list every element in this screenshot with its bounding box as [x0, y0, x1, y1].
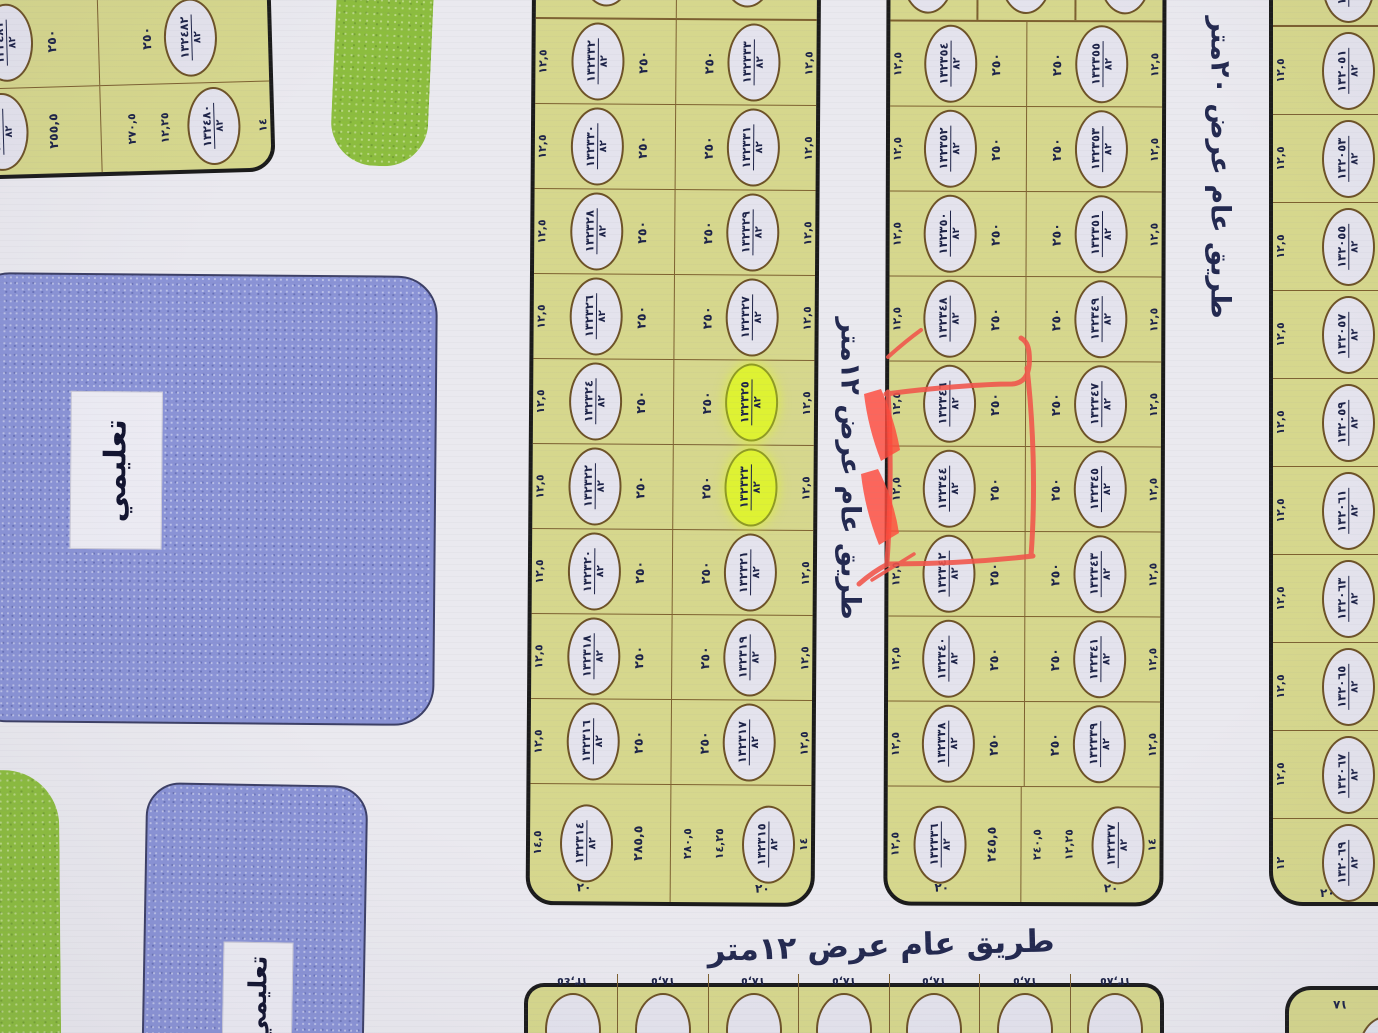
- parcel-row: ١٢,٥ ١٣٢٣٢٤٨٢ ٢٥٠ ٢٥٠ ١٣٢٣٢٥٨٢ ١٢,٥: [533, 359, 815, 446]
- dimension-label: ١٢,٥: [890, 481, 903, 496]
- plot-oval: ١٣٢٠٥١٨٢: [1322, 32, 1375, 110]
- parcel-row: ١٢,٥ ١٣٢٣٤٢٨٢ ٢٥٠ ٢٥٠ ١٣٢٣٤٣٨٢ ١٢,٥: [888, 532, 1160, 618]
- district-number: ٨٢: [1350, 328, 1362, 340]
- plot-cell: ٢٥٠ ١٣٢٣٤٥٨٢: [1025, 447, 1146, 531]
- plot-cell: ١٣٢٣١٦٨٢ ٢٥٠: [545, 699, 672, 784]
- area-label: ٢٨٥,٥: [630, 826, 645, 861]
- area-label: ٢٥٥,٥: [45, 113, 61, 149]
- plot-cell: ١٨,٥: [979, 974, 1069, 1033]
- plot-oval: ١٣٢٠٤٩٨٢: [1322, 0, 1375, 23]
- plot-number: ١٣٢٠٦٣: [1336, 575, 1350, 621]
- plot-cell: ٢٥٠ ١٣٢٣٤٩٨٢: [1026, 277, 1147, 361]
- district-number: ٨٢: [588, 837, 600, 849]
- plot-cell: ١٣٢٣٢٤٨٢ ٢٥٠: [548, 359, 675, 444]
- plot-oval: ١٣٢٣٣٩٨٢: [1073, 705, 1126, 783]
- plot-oval: [906, 993, 962, 1033]
- area-label: ٢٤٠,٥: [1030, 829, 1043, 860]
- plot-cell: ١٣٢٤٧٩٨٢ ٢٥٥,٥: [0, 86, 103, 176]
- dimension-label: ١٢,٥: [1274, 239, 1287, 254]
- dimension-label: ١٢,٥: [1274, 63, 1287, 78]
- plot-oval: ١٣٢٣٢٠٨٢: [568, 532, 622, 610]
- landuse-label-box: تعليمي: [222, 941, 294, 1033]
- parcel-row: ١٢,٥ ١٣٢٣٥٢٨٢ ٢٥٠ ٢٥٠ ١٣٢٣٥٣٨٢ ١٢,٥: [890, 107, 1162, 193]
- area-label: ٢٥٠: [698, 476, 713, 499]
- dimension-label: ١٢,٥: [1274, 679, 1287, 694]
- district-number: ٨٢: [1101, 568, 1113, 580]
- plot-oval: ١٣٢٣٥٣٨٢: [1075, 110, 1128, 188]
- plot-oval: ١٣٢٤٨١٨٢: [0, 3, 34, 82]
- area-label: ٢٥٠: [986, 562, 1001, 585]
- district-number: ٨٢: [1102, 313, 1114, 325]
- dimension-label: ١٢,٥: [1274, 415, 1287, 430]
- district-number: ٨٢: [751, 651, 763, 663]
- area-label: ٢٥٠: [986, 647, 1001, 670]
- plot-cell: ٢٥٠ ١٣٢٣٤٧٨٢: [1025, 362, 1146, 446]
- district-number: ٨٢: [1102, 398, 1114, 410]
- plot-cell: ١٣٢٣٣٨٨٢ ٢٥٠: [903, 702, 1025, 786]
- plot-oval: ١٣٢٣٢٩٨٢: [726, 193, 780, 271]
- plot-oval: ١٣٢٣٣١٨٢: [727, 108, 781, 186]
- dimension-label: ٢٠: [934, 881, 949, 895]
- parcel-row-bottom: ١٢,٥ ١٣٢٣٣٦٨٢ ٢٤٥,٥ ٢٠ ٢٤٠,٥١٢,٢٥ ١٣٢٣٣٧…: [887, 787, 1159, 903]
- district-number: ٨٢: [1350, 504, 1362, 516]
- plot-number: ١٣٢٣٣٨: [935, 721, 949, 767]
- plot-oval: ١٣٢٠٥٧٨٢: [1322, 296, 1375, 374]
- area-label: ٢٥٠: [1048, 478, 1063, 501]
- plot-number: ١٣٢٣٢٥: [739, 379, 753, 425]
- plot-cell: ٢٥٠ ١٣٢٣٥٥٨٢: [1027, 22, 1148, 106]
- parcel-row: ١٢,٥ ١٣٢٣٢٠٨٢ ٢٥٠ ٢٥٠ ١٣٢٣٢١٨٢ ١٢,٥: [532, 529, 814, 616]
- parcel-rows: ١٢,٥ ١٣٢٣٥٤٨٢ ٢٥٠ ٢٥٠ ١٣٢٣٥٥٨٢ ١٢,٥ ١٢,٥…: [888, 22, 1163, 788]
- plot-cell: ٢٥٠ ١٣٢٣٢٧٨٢: [674, 275, 800, 360]
- dimension-label: ٢٠: [755, 882, 770, 896]
- plot-cell: ١٣٢٠٤٩٨٢: [1273, 0, 1378, 25]
- cell-divider: [1075, 0, 1077, 20]
- bottom-right-parcel-block: ١٨: [1285, 986, 1378, 1033]
- dimension-label: ١٢,٥: [1148, 142, 1161, 157]
- plot-number: ١٣٢٠٦١: [1336, 487, 1350, 533]
- green-space: [329, 0, 435, 168]
- dimension-label: ١٢,٥: [1274, 151, 1287, 166]
- district-number: ٨٢: [1350, 416, 1362, 428]
- district-number: ٨٢: [1101, 738, 1113, 750]
- plot-oval: ١٣٢٣٤٩٨٢: [1074, 280, 1127, 358]
- plot-oval: ١٣٢٣٣٠٨٢: [571, 107, 625, 185]
- plot-oval: ١٣٢٣٢٥٨٢: [725, 363, 779, 441]
- plot-cell: ١٣٢٣٤٤٨٢ ٢٥٠: [904, 447, 1026, 531]
- district-number: ٨٢: [755, 141, 767, 153]
- plot-cell: ١٣٢٠٦٥٨٢: [1288, 643, 1378, 730]
- parcel-row: ١٢,٥ ١٣٢٣٢٢٨٢ ٢٥٠ ٢٥٠ ١٣٢٣٢٣٨٢ ١٢,٥: [532, 444, 814, 531]
- dimension-label: ١٨,٥: [741, 975, 765, 988]
- plot-cell: ١٣٢٣١٨٨٢ ٢٥٠: [546, 614, 673, 699]
- plot-number: ١٣٢٣٤٦: [937, 381, 951, 427]
- plot-oval: ١٣٢٣٢٣٨٢: [724, 448, 778, 526]
- parcel-row: ١٢,٥ ١٣٢٣٤٤٨٢ ٢٥٠ ٢٥٠ ١٣٢٣٤٥٨٢ ١٢,٥: [889, 447, 1161, 533]
- area-label: ٢٥٠: [700, 306, 715, 329]
- plot-oval: ١٣٢٣٣٧٨٢: [1091, 806, 1144, 884]
- dimension-label: ١٤: [797, 837, 810, 852]
- plot-oval: ١٣٢٣١٥٨٢: [742, 805, 796, 883]
- plot-oval: ١٣٢٣٥٢٨٢: [924, 110, 977, 188]
- plot-cell: ١٣٢٠٥١٨٢: [1288, 27, 1378, 114]
- plot-cell: ١٣٢٠٥٧٨٢: [1288, 291, 1378, 378]
- plot-oval: ١٣٢٣١٩٨٢: [723, 618, 777, 696]
- landuse-label-box: تعليمي: [70, 391, 163, 550]
- plot-oval: ١٣٢٣٢٤٨٢: [569, 362, 623, 440]
- plot-number: ١٣٢٣٣٠: [584, 123, 598, 169]
- plot-oval: [635, 993, 691, 1033]
- parcel-rows: ١٢,٥ ١٣٢٣٣٢٨٢ ٢٥٠ ٢٥٠ ١٣٢٣٣٣٨٢ ١٢,٥ ١٢,٥…: [530, 19, 816, 786]
- parcel-row: ١٢,٥ ١٣٢٣٤٦٨٢ ٢٥٠ ٢٥٠ ١٣٢٣٤٧٨٢ ١٢,٥: [889, 362, 1161, 448]
- plot-oval: [997, 993, 1053, 1033]
- plot-oval: ١٣٢٣٣٣٨٢: [727, 23, 781, 101]
- district-number: ٨٢: [750, 736, 762, 748]
- parcel-rows: ١٢,٥ ١٣٢٠٥١٨٢ ١٢,٥ ١٣٢٠٥٣٨٢ ١٢,٥ ١٣٢٠٥٥٨…: [1273, 27, 1378, 819]
- plot-oval: ١٣٢٣٤١٨٢: [1073, 620, 1126, 698]
- plot-oval: ١٣٢٣١٧٨٢: [722, 703, 776, 781]
- plot-oval: ١٣٢٠٥٩٨٢: [1322, 384, 1375, 462]
- area-label: ٢٥٠: [987, 392, 1002, 415]
- dimension-label: ١٢,٥: [1146, 567, 1159, 582]
- plot-cell: ١٣٢٣٣٥٨٢: [677, 0, 818, 19]
- plot-number: ١٣٢٣٤٩: [1088, 296, 1102, 342]
- plot-cell: ١٨,٥: [798, 974, 888, 1033]
- road-label-12m-horizontal: طريق عام عرض ١٢متر: [676, 922, 1087, 969]
- plot-cell: ١٣٢٣٢٢٨٢ ٢٥٠: [547, 444, 674, 529]
- plot-number: ١٣٢٣٣٢: [585, 38, 599, 84]
- district-number: ٨٢: [595, 735, 607, 747]
- dimension-label: ١٤: [1146, 837, 1159, 852]
- plot-oval: ١٣٢٣٢٨٨٢: [570, 192, 624, 270]
- district-number: ٨٢: [1102, 483, 1114, 495]
- area-label: ٢٥٠: [633, 390, 648, 413]
- parcel-row-bottom: ١٤,٥ ١٣٢٣١٤٨٢ ٢٨٥,٥ ٢٠ ٢٨٠,٥١٤,٢٥ ١٣٢٣١٥…: [530, 784, 812, 903]
- plot-cell: ١٣٢٠٦٣٨٢: [1288, 555, 1378, 642]
- plot-cell: ١٣٢٠٦٩٨٢ ٢٠: [1288, 819, 1378, 907]
- plot-cell: ٢٥٠ ١٣٢٤٨٢٨٢: [98, 0, 254, 85]
- plot-cell: ٢٥٠ ١٣٢٣٣١٨٢: [676, 105, 802, 190]
- plot-oval: ١٣٢٣٥٤٨٢: [924, 25, 977, 103]
- plot-number: ١٣٢٣٥٤: [938, 41, 952, 87]
- plot-number: ١٣٢٣٥٣: [1089, 126, 1103, 172]
- plot-cell: ١٣٢٠٥٣٨٢: [1288, 115, 1378, 202]
- area-label: ٢٥٠: [1049, 223, 1064, 246]
- dimension-label: ١٢,٥: [532, 734, 545, 749]
- area-label: ٢٥٠: [1049, 308, 1064, 331]
- plot-oval: ١٣٢٤٧٩٨٢: [0, 92, 30, 171]
- district-number: ٨٢: [950, 653, 962, 665]
- plot-cell: ١٣٢٣٤٢٨٢ ٢٥٠: [903, 532, 1025, 616]
- subdivision-map: ١٣٢٤٨٣٨٢ ٢٥٠ ٢٧٠,٥١٣,٢٥ ١٣٢٤٨٤٨٢ ١٢,٥ ١٣…: [0, 0, 1378, 1033]
- parcel-row: ١٢,٥ ١٣٢٠٥٩٨٢: [1273, 379, 1378, 467]
- district-number: ٨٢: [951, 313, 963, 325]
- dimension-label: ١٢,٥: [1148, 57, 1161, 72]
- plot-cell: ١٣٢٣٥٢٨٢ ٢٥٠: [905, 107, 1027, 191]
- plot-cell: ١٨,٥: [889, 974, 979, 1033]
- plot-oval: ١٣٢٣٣٤٨٢: [579, 0, 633, 7]
- parcel-row: ١٢,٥ ١٣٢٠٥٧٨٢: [1273, 291, 1378, 379]
- plot-cell: ١٣٢٣٣٢٨٢ ٢٥٠: [550, 19, 677, 104]
- plot-number: ١٣٢٣٢٣: [738, 464, 752, 510]
- landuse-label: تعليمي: [98, 419, 134, 522]
- dimension-label: ١٢,٥: [533, 479, 546, 494]
- dimension-label: ١٢,٥: [1147, 397, 1160, 412]
- area-label: ٢٥٠: [1047, 733, 1062, 756]
- area-label: ٢٥٠: [701, 51, 716, 74]
- dimension-label: ١٢,٥: [799, 480, 812, 495]
- area-label: ٢٥٠: [1047, 648, 1062, 671]
- area-label: ٢٥٠: [988, 137, 1003, 160]
- district-number: ٨٢: [1350, 768, 1362, 780]
- plot-number: ١٣٢٣٢٢: [582, 463, 596, 509]
- dimension-label: ١٢,٥: [889, 837, 902, 852]
- plot-cell: ١٣٢٣٣٠٨٢ ٢٥٠: [550, 104, 677, 189]
- plot-cell: ١٣٢٣٤٠٨٢ ٢٥٠: [903, 617, 1025, 701]
- plot-number: ١٣٢٣١٩: [737, 634, 751, 680]
- plot-oval: ١٣٢٣٤٨٨٢: [923, 280, 976, 358]
- dimension-label: ١٢,٥: [1274, 503, 1287, 518]
- parcel-row-partial: ١٣٢٣٥٦٨٢ ١٣٢٣٥٧٨٢ ١٣٢٣٥٨٨٢: [890, 0, 1162, 22]
- district-number: ٨٢: [950, 483, 962, 495]
- area-label: ٢٥٠: [632, 475, 647, 498]
- district-number: ٨٢: [1350, 592, 1362, 604]
- plot-cell: ٢٥٠ ١٣٢٣٣٣٨٢: [676, 20, 802, 105]
- plot-oval: ١٣٢٣٥٨٨٢: [1098, 0, 1151, 14]
- parcel-row: ١٢,٥ ١٣٢٣١٦٨٢ ٢٥٠ ٢٥٠ ١٣٢٣١٧٨٢ ١٢,٥: [530, 699, 812, 786]
- dimension-label: ١٢: [1274, 856, 1287, 871]
- district-number: ٨٢: [950, 568, 962, 580]
- plot-number: ١٣٢٣٢٠: [582, 548, 596, 594]
- plot-oval: ١٣٢٤٨٢٨٢: [163, 0, 218, 77]
- plot-oval: [545, 993, 601, 1033]
- plot-cell: ١٣٢٣٥٤٨٢ ٢٥٠: [905, 22, 1027, 106]
- dimension-label: ١٢,٥: [801, 225, 814, 240]
- plot-number: ١٣٢٣٣٣: [741, 39, 755, 85]
- plot-number: ١٣٢٣١٧: [736, 719, 750, 765]
- plot-number: ١٣٢٣٥٥: [1089, 41, 1103, 87]
- plot-number: ١٣٢٣٢٩: [740, 209, 754, 255]
- plot-number: ١٣٢٣٣٦: [927, 821, 941, 867]
- plot-oval: ١٣٢٠٦٧٨٢: [1322, 736, 1375, 814]
- plot-cell: ٢٥٠ ١٣٢٣٥١٨٢: [1026, 192, 1147, 276]
- district-number: ٨٢: [1350, 680, 1362, 692]
- plot-number: ١٣٢٣٤٥: [1088, 466, 1102, 512]
- plot-oval: ١٣٢٤٨٠٨٢: [186, 86, 241, 165]
- dimension-label: ١٢,٥: [800, 395, 813, 410]
- dimension-label: ١٨,٥: [832, 975, 856, 988]
- parcel-block-a: ١٣٢٣٣٤٨٢ ١٣٢٣٣٥٨٢ ١٢,٥ ١٣٢٣٣٢٨٢ ٢٥٠ ٢٥٠ …: [526, 0, 822, 907]
- parcel-row: ١٢,٥ ١٣٢٣٥٠٨٢ ٢٥٠ ٢٥٠ ١٣٢٣٥١٨٢ ١٢,٥: [890, 192, 1162, 278]
- parcel-row: ١٢,٥ ١٣٢٣٤٠٨٢ ٢٥٠ ٢٥٠ ١٣٢٣٤١٨٢ ١٢,٥: [888, 617, 1160, 703]
- green-space: [0, 770, 61, 1033]
- plot-number: ١٣٢٤٨٢: [177, 14, 192, 60]
- plot-oval: ١٣٢٣٤٥٨٢: [1074, 450, 1127, 528]
- corner-parcel-block: ١٣٢٤٨٣٨٢ ٢٥٠ ٢٧٠,٥١٣,٢٥ ١٣٢٤٨٤٨٢ ١٢,٥ ١٣…: [0, 0, 276, 181]
- dimension-label: ١٢,٥: [801, 310, 814, 325]
- parcel-row: ١٢,٥ ١٣٢٠٦٧٨٢: [1273, 731, 1378, 819]
- plot-number: ١٣٢٣٣٧: [1105, 822, 1119, 868]
- area-label: ٢٥٠: [986, 732, 1001, 755]
- dimension-label: ١٢,٥: [534, 394, 547, 409]
- plot-number: ١٣٢٣٤٧: [1088, 381, 1102, 427]
- plot-oval: ١٣٢٠٦١٨٢: [1322, 472, 1375, 550]
- plot-cell: ١٣٢٣٣٤٨٢: [536, 0, 678, 18]
- dimension-label: ١٢,٥: [890, 396, 903, 411]
- dimension-label: ١٢,٥: [799, 565, 812, 580]
- plot-number: ١٣٢٣٤٨: [937, 296, 951, 342]
- bottom-parcel-strip: ١٣,٤٥ ١٨,٥ ١٨,٥ ١٨,٥ ١٨,٥ ١٨,٥ ١٣,٨٥: [524, 983, 1164, 1033]
- plot-number: ١٣٢٣٥١: [1088, 211, 1102, 257]
- plot-number: ١٣٢٣٢٦: [583, 293, 597, 339]
- plot-cell: ١٣٢٠٥٥٨٢: [1288, 203, 1378, 290]
- dimension-label: ١٨,٥: [922, 975, 946, 988]
- dimension-label: ١٢,٥: [535, 309, 548, 324]
- plot-cell: ٢٨٠,٥١٤,٢٥ ١٣٢٣١٥٨٢ ٢٠: [671, 785, 797, 903]
- parcel-row: ١٢,٥ ١٣٢٠٦٣٨٢: [1273, 555, 1378, 643]
- district-number: ٨٢: [951, 398, 963, 410]
- district-number: ٨٢: [942, 838, 954, 850]
- dimension-label: ٢٠: [1104, 881, 1119, 895]
- district-number: ٨٢: [598, 225, 610, 237]
- plot-number: ١٣٢٠٥٣: [1336, 135, 1350, 181]
- district-number: ٨٢: [952, 143, 964, 155]
- district-number: ٨٢: [752, 566, 764, 578]
- plot-oval: ١٣٢٣١٤٨٢: [560, 804, 614, 882]
- parcel-row: ١٢,٥ ١٣٢٠٥٥٨٢: [1273, 203, 1378, 291]
- parcel-row: ١٢,٥ ١٣٢٣٣٨٨٢ ٢٥٠ ٢٥٠ ١٣٢٣٣٩٨٢ ١٢,٥: [888, 702, 1160, 788]
- dimension-label: ١٢,٥: [1146, 737, 1159, 752]
- plot-cell: ٢٥٠ ١٣٢٣٢٣٨٢: [673, 445, 799, 530]
- parcel-row: ١٢,٥ ١٣٢٣١٨٨٢ ٢٥٠ ٢٥٠ ١٣٢٣١٩٨٢ ١٢,٥: [531, 614, 813, 701]
- dimension-label: ١٢,٥: [533, 564, 546, 579]
- area-label: ٢٥٠: [631, 645, 646, 668]
- dimension-stack: ٢٨٠,٥١٤,٢٥: [672, 837, 735, 850]
- road-label-20m-vertical: طريق عام عرض ٢٠متر: [1205, 2, 1236, 334]
- plot-number: ١٣٢٠٦٩: [1336, 840, 1350, 886]
- plot-number: ١٣٢٣٢٤: [583, 378, 597, 424]
- dimension-label: ١٢,٥: [1147, 482, 1160, 497]
- plot-number: ١٣٢٣٥٠: [937, 211, 951, 257]
- dimension-label: ٢٠: [1320, 886, 1335, 900]
- area-label: ٢٨٠,٥: [681, 828, 694, 859]
- plot-cell: ١٨,٥: [708, 974, 798, 1033]
- plot-number: ١٣٢٠٤٩: [1336, 0, 1350, 7]
- area-label: ٢٥٠: [635, 135, 650, 158]
- area-label: ٢٥٠: [699, 391, 714, 414]
- plot-cell: ١٣,٤٥: [528, 974, 617, 1033]
- dimension-label: ١٢,٥: [532, 649, 545, 664]
- parcel-row: ١٢,٥ ١٣٢٠٥١٨٢: [1273, 27, 1378, 115]
- educational-block: تعليمي: [142, 782, 369, 1033]
- area-label: ٢٥٠: [138, 27, 154, 50]
- parcel-row: ١٢,٥ ١٣٢٣٥٤٨٢ ٢٥٠ ٢٥٠ ١٣٢٣٥٥٨٢ ١٢,٥: [890, 22, 1162, 108]
- district-number: ٨٢: [1350, 64, 1362, 76]
- dimension-label: ١٢,٥: [890, 311, 903, 326]
- plot-number: ١٣٢٠٥٧: [1336, 311, 1350, 357]
- dimension-label: ١٢,٥: [891, 56, 904, 71]
- dimension-label: ١٢,٢٥: [1062, 829, 1075, 860]
- dimension-label: ١٣,٤٥: [557, 975, 588, 988]
- plot-cell: ٢٥٠ ١٣٢٣٤١٨٢: [1025, 617, 1146, 701]
- district-number: ٨٢: [753, 396, 765, 408]
- area-label: ٢٥٠: [1048, 393, 1063, 416]
- district-number: ٨٢: [595, 650, 607, 662]
- dimension-label: ١٢,٥: [798, 735, 811, 750]
- area-label: ٢٥٠: [631, 730, 646, 753]
- dimension-label: ١٨,٥: [651, 975, 675, 988]
- parcel-row: ١٢,٥ ١٣٢٠٦٥٨٢: [1273, 643, 1378, 731]
- district-number: ٨٢: [753, 311, 765, 323]
- plot-cell: ١٣٢٣٥٠٨٢ ٢٥٠: [905, 192, 1027, 276]
- area-label: ٢٥٠: [635, 50, 650, 73]
- district-number: ٨٢: [7, 36, 19, 49]
- district-number: ٨٢: [596, 565, 608, 577]
- plot-oval: ١٣٢٣١٦٨٢: [567, 702, 621, 780]
- area-label: ٢٥٠: [632, 560, 647, 583]
- plot-number: ١٣٢٣٤٠: [936, 636, 950, 682]
- area-label: ٢٥٠: [1049, 138, 1064, 161]
- area-label: ٢٥٠: [43, 29, 59, 52]
- district-number: ٨٢: [754, 226, 766, 238]
- dimension-label: ١٢,٥: [1146, 652, 1159, 667]
- area-label: ٢٥٠: [1049, 53, 1064, 76]
- parcel-row: ١٣٢٤٧٩٨٢ ٢٥٥,٥ ٢٧٠,٥١٢,٢٥ ١٣٢٤٨٠٨٢ ١٤: [0, 81, 272, 176]
- plot-number: ١٣٢٣٢٨: [584, 208, 598, 254]
- dimension-label: ١٨,٥: [1013, 975, 1037, 988]
- plot-number: ١٣٢٠٦٥: [1336, 663, 1350, 709]
- plot-number: ١٣٢٣١٥: [756, 821, 770, 867]
- plot-number: ١٣٢٣٢١: [737, 549, 751, 595]
- district-number: ٨٢: [952, 58, 964, 70]
- plot-cell: ١٣٢٣٤٦٨٢ ٢٥٠: [904, 362, 1026, 446]
- district-number: ٨٢: [752, 481, 764, 493]
- dimension-label: ١٢,٥: [536, 139, 549, 154]
- plot-cell: ١٣٢٣٢٦٨٢ ٢٥٠: [548, 274, 675, 359]
- district-number: ٨٢: [1101, 653, 1113, 665]
- plot-number: ١٣٢٣٢٧: [739, 294, 753, 340]
- area-label: ٢٥٠: [988, 52, 1003, 75]
- dimension-stack: ٢٤٠,٥١٢,٢٥: [1021, 838, 1084, 851]
- area-label: ٢٥٠: [697, 646, 712, 669]
- plot-number: ١٣٢٣٤٢: [936, 551, 950, 597]
- dimension-label: ١٢,٥: [798, 650, 811, 665]
- district-number: ٨٢: [1350, 240, 1362, 252]
- area-label: ٢٥٠: [697, 731, 712, 754]
- plot-oval: ١٣٢٣٥٥٨٢: [1075, 25, 1128, 103]
- district-number: ٨٢: [3, 125, 15, 138]
- dimension-label: ١٢,٥: [1274, 591, 1287, 606]
- plot-cell: ١٣٢٠٦١٨٢: [1288, 467, 1378, 554]
- district-number: ٨٢: [599, 55, 611, 67]
- plot-oval: ١٣٢٣٤٣٨٢: [1074, 535, 1127, 613]
- plot-cell: ٢٥٠ ١٣٢٣٢٥٨٢: [674, 360, 800, 445]
- plot-cell: ١٣٢٣٢٨٨٢ ٢٥٠: [549, 189, 676, 274]
- plot-oval: ١٣٢٣٥٠٨٢: [923, 195, 976, 273]
- dimension-stack: ٢٧٠,٥١٢,٢٥: [117, 120, 180, 135]
- plot-cell: ١٣٢٣١٤٨٢ ٢٨٥,٥ ٢٠: [545, 784, 672, 902]
- educational-block: تعليمي: [0, 272, 438, 726]
- plot-cell: ٢٥٠ ١٣٢٣٢٩٨٢: [675, 190, 801, 275]
- plot-oval: ١٣٢٣٣٥٨٢: [720, 0, 774, 8]
- area-label: ٢٥٠: [698, 561, 713, 584]
- plot-oval: [726, 993, 782, 1033]
- plot-cell: ٢٥٠ ١٣٢٣١٧٨٢: [671, 700, 797, 785]
- district-number: ٨٢: [1103, 58, 1115, 70]
- plot-cell: ١٣٢٣٣٦٨٢ ٢٤٥,٥ ٢٠: [902, 787, 1021, 902]
- plot-oval: ١٣٢٣٤٠٨٢: [922, 620, 975, 698]
- plot-oval: ١٣٢٣٢٧٨٢: [725, 278, 779, 356]
